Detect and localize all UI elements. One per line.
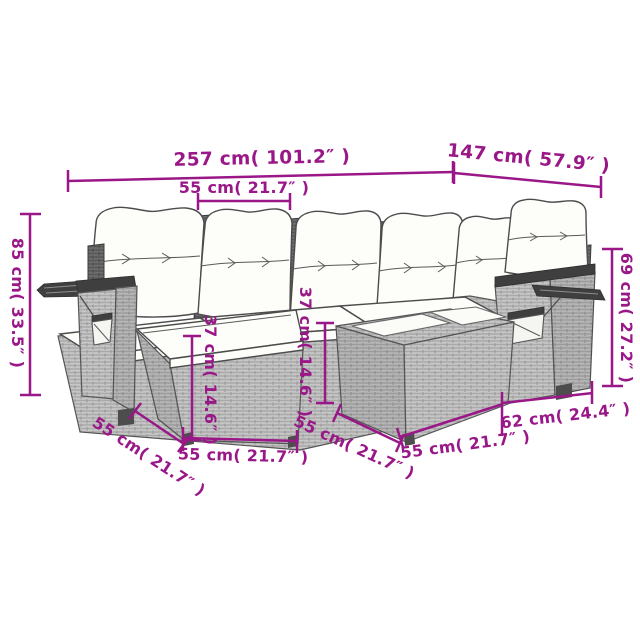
dimension-label: 55 cm( 21.7″ ) — [178, 444, 309, 466]
armrest-shading — [113, 286, 137, 412]
dimension-label: 37 cm( 14.6″ ) — [201, 315, 220, 446]
dimension-label: 85 cm( 33.5″ ) — [8, 238, 27, 369]
product-dimension-diagram: 257 cm( 101.2″ ) 147 cm( 57.9″ ) 55 cm( … — [0, 0, 640, 640]
dim-armrest-height: 69 cm( 27.2″ ) — [602, 249, 636, 386]
back-cushion — [505, 199, 588, 276]
dimension-label: 62 cm( 24.4″ ) — [499, 399, 631, 433]
dim-total-height: 85 cm( 33.5″ ) — [8, 214, 41, 395]
dimension-label: 69 cm( 27.2″ ) — [617, 253, 636, 384]
dimension-label: 147 cm( 57.9″ ) — [446, 140, 611, 177]
dim-seat-width: 55 cm( 21.7″ ) — [179, 178, 310, 210]
armrest-pocket — [92, 319, 112, 345]
dimension-line — [454, 173, 601, 187]
dimension-label: 37 cm( 14.6″ ) — [296, 287, 315, 418]
left-armrest-back-post — [88, 244, 104, 284]
lounge-set-illustration: 257 cm( 101.2″ ) 147 cm( 57.9″ ) 55 cm( … — [0, 0, 640, 640]
dim-right-depth: 147 cm( 57.9″ ) — [446, 140, 611, 198]
dimension-label: 55 cm( 21.7″ ) — [179, 178, 310, 197]
dimension-label: 257 cm( 101.2″ ) — [173, 146, 350, 171]
